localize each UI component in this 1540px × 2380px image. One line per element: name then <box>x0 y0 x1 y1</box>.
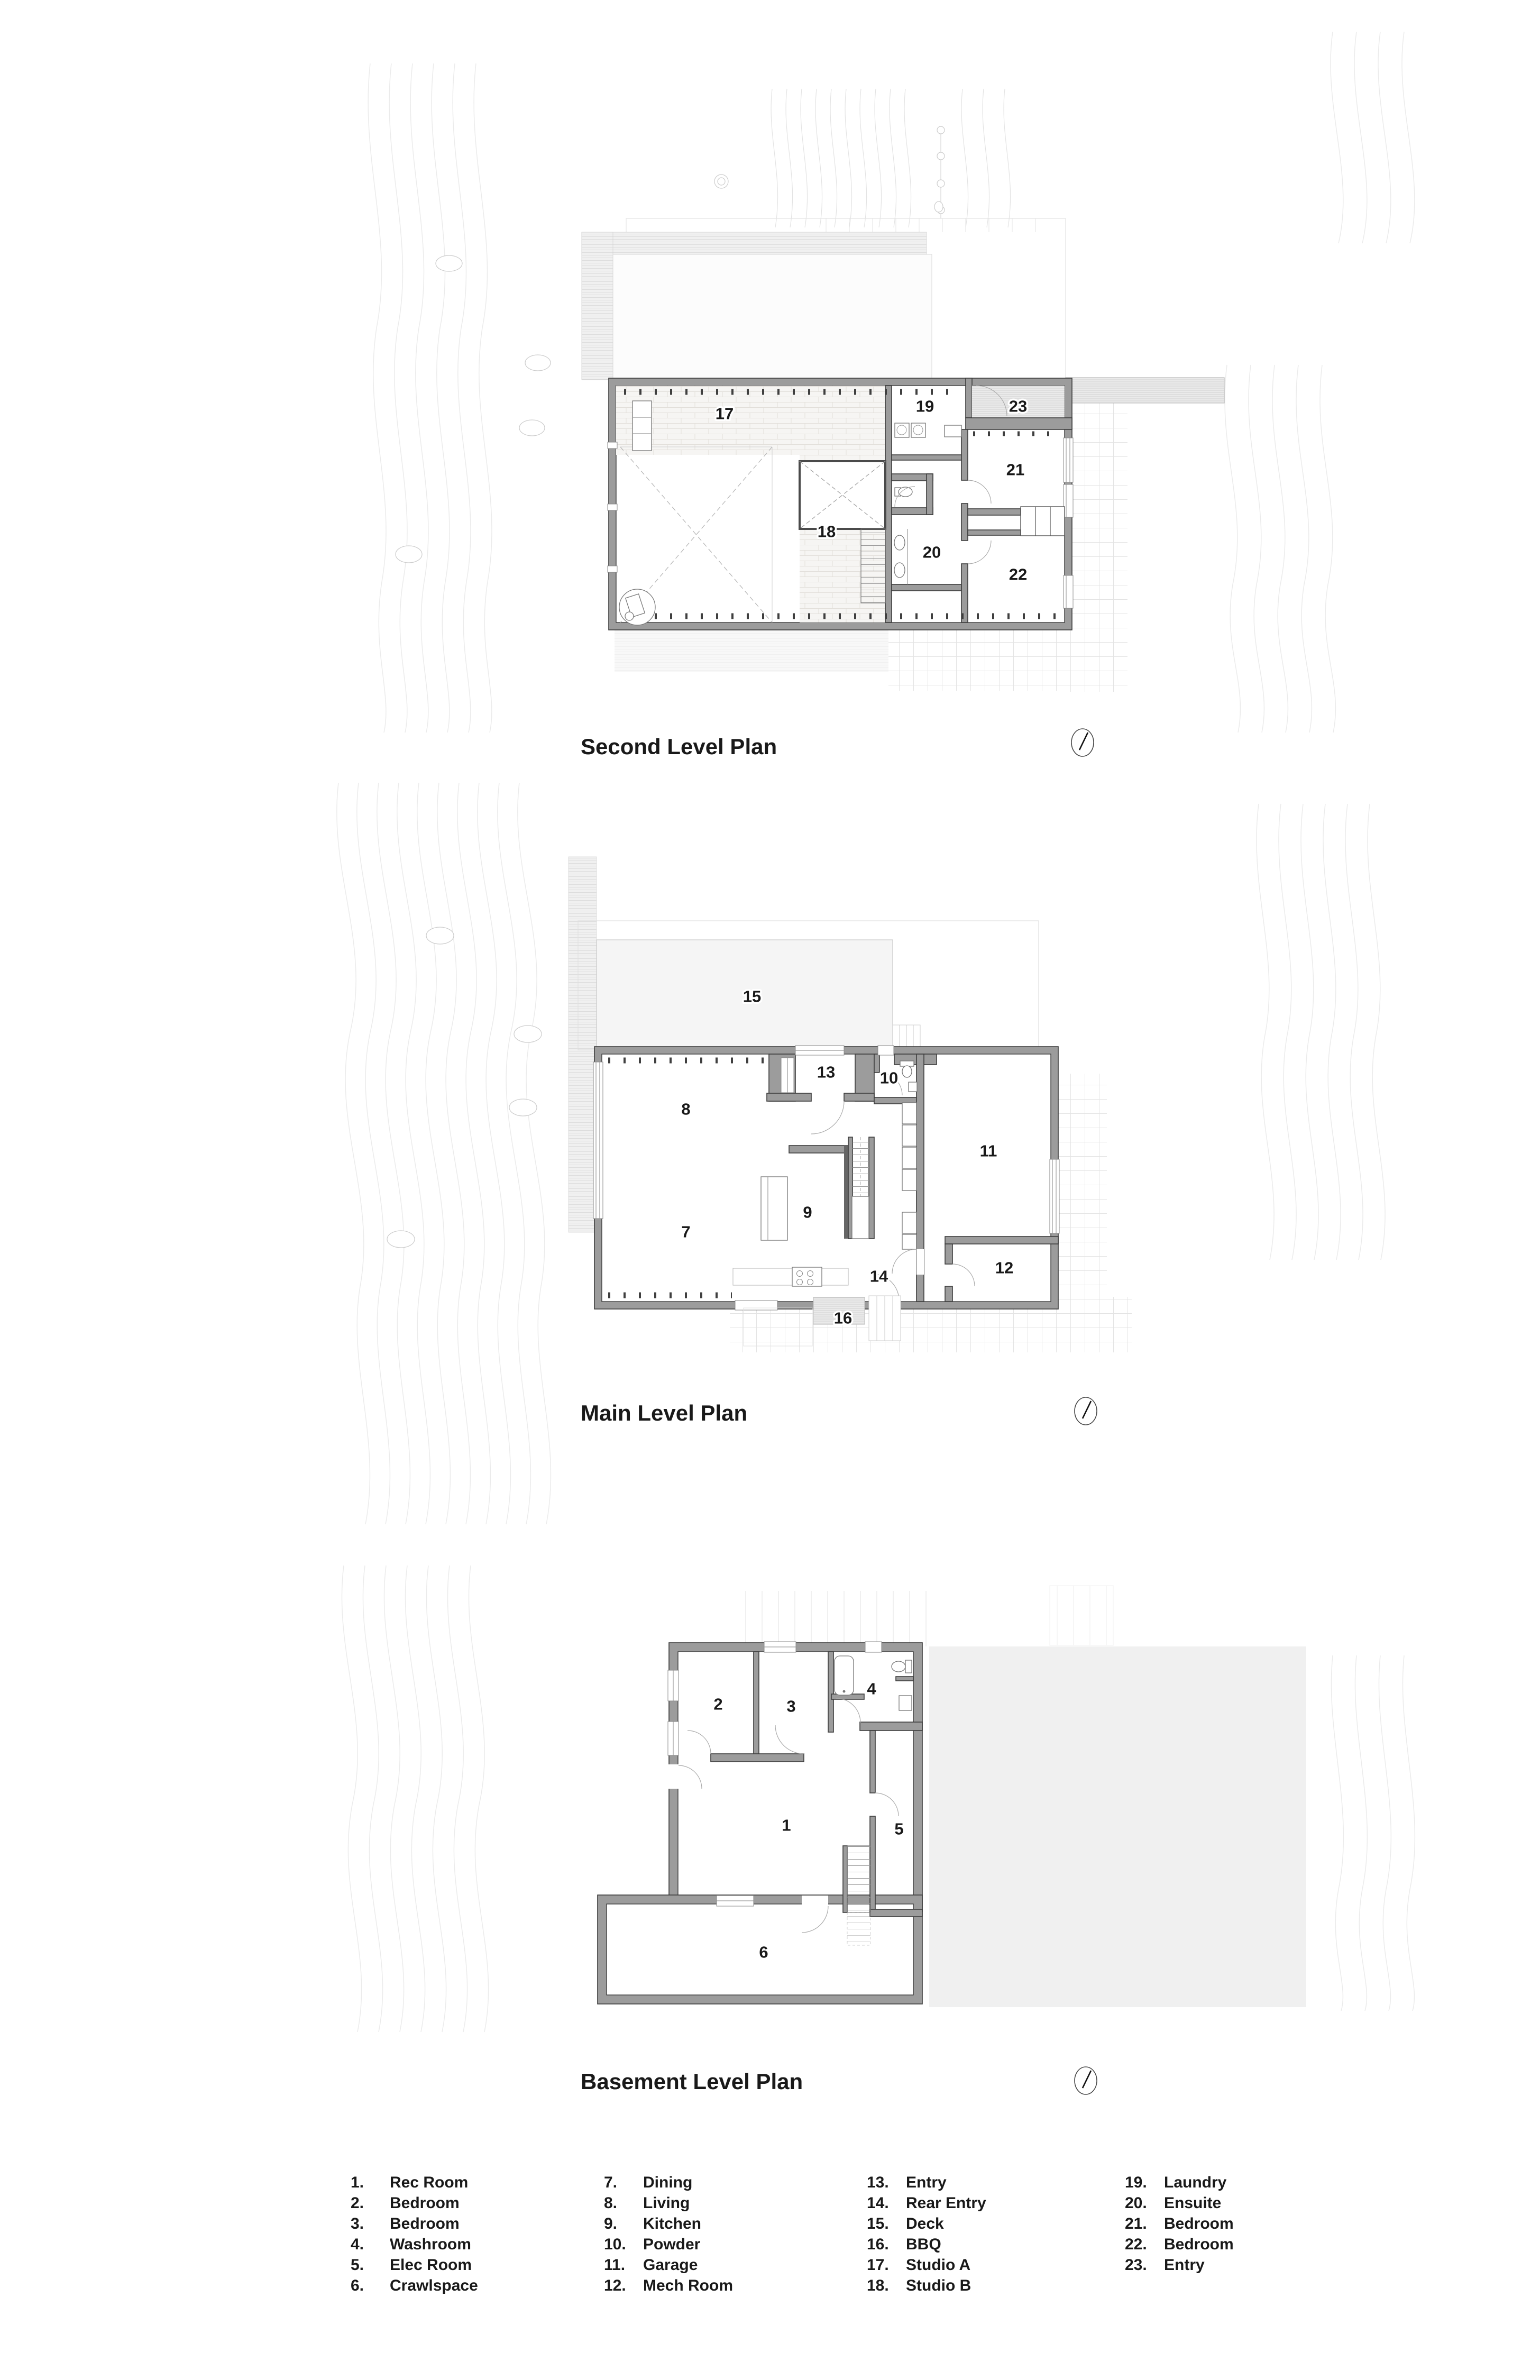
legend-item-number: 7. <box>604 2174 643 2192</box>
contour-cluster-left-main <box>337 783 551 1524</box>
legend-item-number: 4. <box>351 2236 390 2254</box>
legend-item-label: Entry <box>906 2174 947 2192</box>
legend-item: 2.Bedroom <box>351 2194 478 2215</box>
legend-item: 11.Garage <box>604 2256 733 2277</box>
north-arrow-icon <box>1069 1392 1103 1430</box>
legend-item-label: Living <box>643 2194 690 2212</box>
room-label-18: 18 <box>818 523 836 541</box>
room-label-3: 3 <box>786 1697 795 1716</box>
legend-item-label: Washroom <box>390 2236 471 2254</box>
legend-item-label: Garage <box>643 2256 698 2274</box>
legend-column-3: 13.Entry 14.Rear Entry 15.Deck 16.BBQ 17… <box>867 2174 986 2297</box>
legend-item: 3.Bedroom <box>351 2215 478 2236</box>
legend-item: 10.Powder <box>604 2236 733 2256</box>
legend-item: 5.Elec Room <box>351 2256 478 2277</box>
legend-item: 19.Laundry <box>1125 2174 1234 2194</box>
main-level-plan-drawing: 15 13 10 8 11 9 7 14 12 16 <box>539 846 1290 1375</box>
room-label-7: 7 <box>681 1223 690 1241</box>
legend-item-number: 5. <box>351 2256 390 2274</box>
legend-item: 14.Rear Entry <box>867 2194 986 2215</box>
room-label-5: 5 <box>894 1820 903 1838</box>
room-label-22: 22 <box>1009 565 1027 584</box>
room-label-23: 23 <box>1009 397 1027 416</box>
second-level-plan-title: Second Level Plan <box>581 734 777 759</box>
legend-item-number: 19. <box>1125 2174 1164 2192</box>
contour-cluster-left-second <box>368 63 492 733</box>
room-label-8: 8 <box>681 1100 690 1119</box>
room-label-10: 10 <box>880 1069 898 1087</box>
legend-item-number: 14. <box>867 2194 906 2212</box>
legend-item-label: Rec Room <box>390 2174 468 2192</box>
legend-item-number: 15. <box>867 2215 906 2233</box>
contour-cluster-right-basement <box>1331 1655 1415 2011</box>
legend-item-number: 10. <box>604 2236 643 2254</box>
legend-item: 6.Crawlspace <box>351 2277 478 2297</box>
legend-item: 12.Mech Room <box>604 2277 733 2297</box>
legend-item-number: 2. <box>351 2194 390 2212</box>
second-walkway <box>1066 378 1224 403</box>
legend-item-label: Laundry <box>1164 2174 1226 2192</box>
legend-item-label: Studio B <box>906 2277 971 2295</box>
legend-item: 9.Kitchen <box>604 2215 733 2236</box>
legend-column-4: 19.Laundry 20.Ensuite 21.Bedroom 22.Bedr… <box>1125 2174 1234 2277</box>
legend-item-number: 9. <box>604 2215 643 2233</box>
legend-item-number: 13. <box>867 2174 906 2192</box>
room-label-6: 6 <box>759 1943 768 1962</box>
legend-item-number: 22. <box>1125 2236 1164 2254</box>
legend-item-number: 21. <box>1125 2215 1164 2233</box>
legend-item: 18.Studio B <box>867 2277 986 2297</box>
legend-item-label: Entry <box>1164 2256 1205 2274</box>
room-label-1: 1 <box>782 1816 791 1835</box>
legend-item: 23.Entry <box>1125 2256 1234 2277</box>
room-label-17: 17 <box>716 405 734 423</box>
legend-item-number: 6. <box>351 2277 390 2295</box>
legend-item: 1.Rec Room <box>351 2174 478 2194</box>
room-label-21: 21 <box>1006 461 1024 479</box>
second-open-to-below <box>800 461 885 529</box>
room-label-9: 9 <box>803 1203 812 1222</box>
room-label-2: 2 <box>713 1695 722 1714</box>
main-level-plan-title: Main Level Plan <box>581 1400 747 1426</box>
room-label-4: 4 <box>867 1680 876 1698</box>
legend-item-label: BBQ <box>906 2236 941 2254</box>
legend-item-number: 8. <box>604 2194 643 2212</box>
legend-item-number: 16. <box>867 2236 906 2254</box>
legend-item-number: 20. <box>1125 2194 1164 2212</box>
legend-item: 17.Studio A <box>867 2256 986 2277</box>
legend-column-2: 7.Dining 8.Living 9.Kitchen 10.Powder 11… <box>604 2174 733 2297</box>
room-label-16: 16 <box>834 1309 852 1328</box>
legend-item: 7.Dining <box>604 2174 733 2194</box>
legend-item-number: 18. <box>867 2277 906 2295</box>
room-label-20: 20 <box>923 543 941 562</box>
legend-item: 4.Washroom <box>351 2236 478 2256</box>
legend-item: 21.Bedroom <box>1125 2215 1234 2236</box>
legend-item: 15.Deck <box>867 2215 986 2236</box>
basement-level-plan-drawing: 2 3 4 1 5 6 <box>539 1560 1333 2036</box>
contour-cluster-left-basement <box>342 1566 488 2032</box>
main-stair <box>852 1137 869 1239</box>
legend-item-label: Studio A <box>906 2256 970 2274</box>
room-label-12: 12 <box>995 1259 1013 1277</box>
legend-item-number: 3. <box>351 2215 390 2233</box>
legend-item-label: Bedroom <box>1164 2215 1234 2233</box>
north-arrow-icon <box>1069 2062 1103 2100</box>
room-label-14: 14 <box>870 1267 888 1286</box>
second-stair <box>861 529 885 603</box>
legend-item-label: Ensuite <box>1164 2194 1221 2212</box>
basement-level-plan-title: Basement Level Plan <box>581 2069 803 2094</box>
legend-item-label: Bedroom <box>390 2194 460 2212</box>
room-label-15: 15 <box>743 987 761 1006</box>
legend-item: 20.Ensuite <box>1125 2194 1234 2215</box>
legend-item-label: Bedroom <box>1164 2236 1234 2254</box>
room-label-19: 19 <box>916 397 934 416</box>
basement-stair <box>847 1846 870 1945</box>
legend-item-label: Dining <box>643 2174 692 2192</box>
legend-item: 16.BBQ <box>867 2236 986 2256</box>
legend-item: 8.Living <box>604 2194 733 2215</box>
legend-item-label: Deck <box>906 2215 944 2233</box>
legend-column-1: 1.Rec Room 2.Bedroom 3.Bedroom 4.Washroo… <box>351 2174 478 2297</box>
legend-item: 13.Entry <box>867 2174 986 2194</box>
legend-item-label: Mech Room <box>643 2277 733 2295</box>
legend-item-label: Crawlspace <box>390 2277 478 2295</box>
legend-item: 22.Bedroom <box>1125 2236 1234 2256</box>
legend-item-label: Kitchen <box>643 2215 701 2233</box>
legend-item-label: Rear Entry <box>906 2194 986 2212</box>
legend-item-number: 11. <box>604 2256 643 2274</box>
second-level-plan-drawing: 17 19 23 21 18 20 22 <box>539 201 1290 703</box>
room-label-11: 11 <box>980 1142 997 1160</box>
legend-item-number: 17. <box>867 2256 906 2274</box>
drawing-sheet: 17 19 23 21 18 20 22 <box>0 0 1540 2380</box>
legend-item-number: 23. <box>1125 2256 1164 2274</box>
room-label-13: 13 <box>817 1063 835 1082</box>
legend-item-number: 12. <box>604 2277 643 2295</box>
legend-item-label: Bedroom <box>390 2215 460 2233</box>
legend-item-label: Powder <box>643 2236 700 2254</box>
legend-item-label: Elec Room <box>390 2256 472 2274</box>
north-arrow-icon <box>1066 724 1099 762</box>
legend-item-number: 1. <box>351 2174 390 2192</box>
